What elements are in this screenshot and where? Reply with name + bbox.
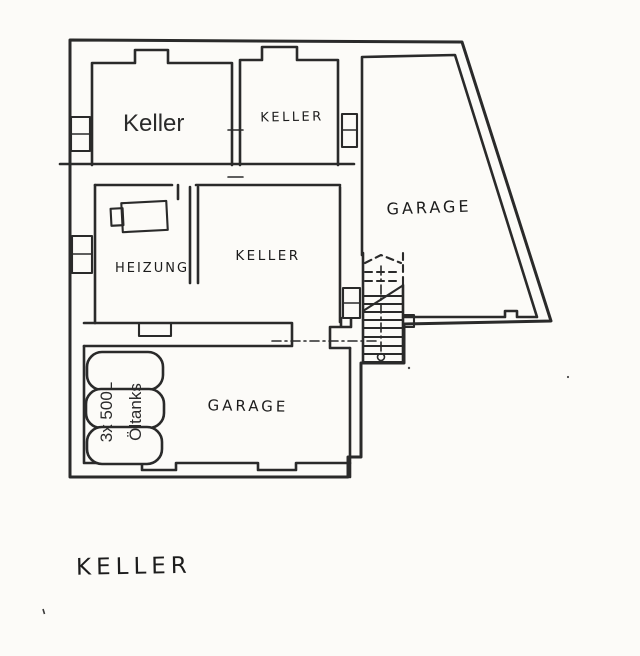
boiler-symbol [110,201,167,233]
window-niches [71,114,360,318]
label-garage-lower: GARAGE [207,396,288,415]
scanned-floorplan-page: Keller KELLER GARAGE HEIZUNG KELLER GARA… [0,0,640,656]
label-heizung: HEIZUNG [115,261,189,276]
wall-band-lower [84,323,292,346]
room-keller-top-outline [240,47,338,165]
heizung-threshold [139,323,171,336]
room-keller-main-outline [92,50,232,165]
label-keller-top-right: KELLER [260,109,324,125]
stair-break-line [363,286,402,311]
plan-title: KELLER [76,553,192,581]
stair-hidden-treads [365,255,401,281]
middle-rooms-ceiling [95,185,340,199]
label-keller-middle: KELLER [235,248,300,264]
garage-upper-outline [362,55,537,317]
stair-treads [363,296,403,362]
label-oiltanks-line2: Öltanks [126,383,145,441]
floorplan-drawing: Keller KELLER GARAGE HEIZUNG KELLER GARA… [0,0,640,656]
label-garage-upper: GARAGE [386,197,472,219]
label-keller-main: Keller [123,110,184,137]
label-oiltanks-line1: 3x 500L [97,382,116,443]
stair-junction [330,318,351,348]
heizung-keller-partition [190,187,198,283]
